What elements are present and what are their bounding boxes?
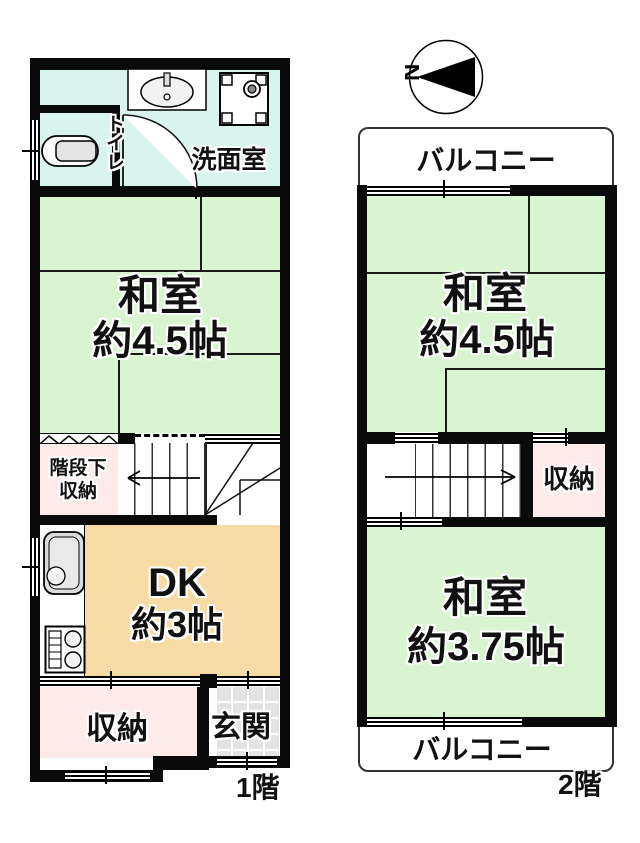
window (217, 676, 280, 686)
floor1-label: 1階 (236, 773, 280, 802)
door-arc-icon (121, 112, 201, 192)
f2-storage-label: 収納 (543, 466, 595, 493)
compass-north-text: N (405, 64, 425, 81)
f1-stairs-direction-arrow (122, 468, 202, 488)
wall-tick (247, 671, 249, 689)
toilet-icon (40, 132, 102, 170)
wall (357, 432, 395, 444)
wall (30, 515, 217, 525)
window (367, 186, 510, 196)
wall (30, 105, 120, 113)
washbasin-icon (126, 66, 208, 112)
wall-tick (22, 566, 40, 568)
entrance-label: 玄関 (211, 712, 271, 744)
wall (522, 717, 617, 727)
f2-washitsu45-size: 約4.5帖 (419, 319, 555, 361)
wall (438, 432, 533, 444)
stairs-opening-dashed-line (135, 434, 205, 437)
stove-icon (44, 625, 86, 674)
washer-pan-icon (218, 71, 270, 127)
f2-washitsu375-size: 約3.75帖 (407, 626, 565, 668)
f2-washitsu375-name: 和室 (443, 576, 527, 620)
understairs-storage-label-1: 階段下 (49, 459, 106, 479)
sliding-door (533, 433, 568, 443)
tatami-line (445, 368, 605, 370)
f2-washitsu45-name: 和室 (443, 272, 527, 316)
sliding-door (395, 433, 438, 443)
f2-stairs-direction-arrow (383, 467, 523, 487)
compass-icon: N (405, 37, 489, 119)
understairs-storage-area (40, 444, 118, 515)
wall-tick (443, 712, 445, 730)
wall (568, 432, 617, 444)
understairs-storage-label-2: 収納 (59, 482, 97, 502)
toilet-label: トイレ (103, 114, 123, 171)
tatami-line (445, 368, 447, 432)
window (367, 517, 442, 527)
wall (153, 758, 209, 770)
wall-tick (246, 752, 248, 770)
floor2-label: 2階 (558, 770, 602, 799)
dk-size: 約3帖 (131, 606, 223, 644)
tatami-line (200, 197, 202, 270)
wall-tick (22, 150, 40, 152)
wall (442, 517, 617, 527)
wall (510, 185, 617, 196)
balcony-top-label: バルコニー (416, 146, 555, 175)
wall-tick (110, 671, 112, 689)
floorplan-image: 洗面室 トイレ 和室 約4.5帖 階段下 収納 DK 約3帖 収納 玄関 1階 … (0, 0, 640, 843)
f1-washitsu-size: 約4.5帖 (92, 320, 228, 362)
window (65, 771, 150, 781)
wall (280, 58, 290, 768)
tatami-line (118, 353, 120, 433)
dk-name: DK (148, 562, 206, 604)
wall (605, 185, 617, 727)
kitchen-sink-icon (42, 530, 86, 596)
wall (200, 674, 217, 688)
f1-winder-stairs (205, 443, 280, 515)
window (367, 717, 522, 727)
wall-tick (105, 766, 107, 784)
wall-tick (565, 428, 567, 446)
tatami-line (528, 196, 530, 272)
balcony-bottom-label: バルコニー (412, 735, 551, 764)
wall (357, 185, 367, 727)
f2-washitsu375-area (367, 527, 605, 717)
washroom-label: 洗面室 (191, 147, 266, 173)
wall-tick (443, 180, 445, 198)
f1-closet-strip (40, 433, 118, 444)
f1-storage-label: 収納 (86, 713, 148, 746)
window (40, 676, 200, 686)
wall-tick (400, 512, 402, 530)
f1-washitsu-name: 和室 (118, 274, 202, 318)
